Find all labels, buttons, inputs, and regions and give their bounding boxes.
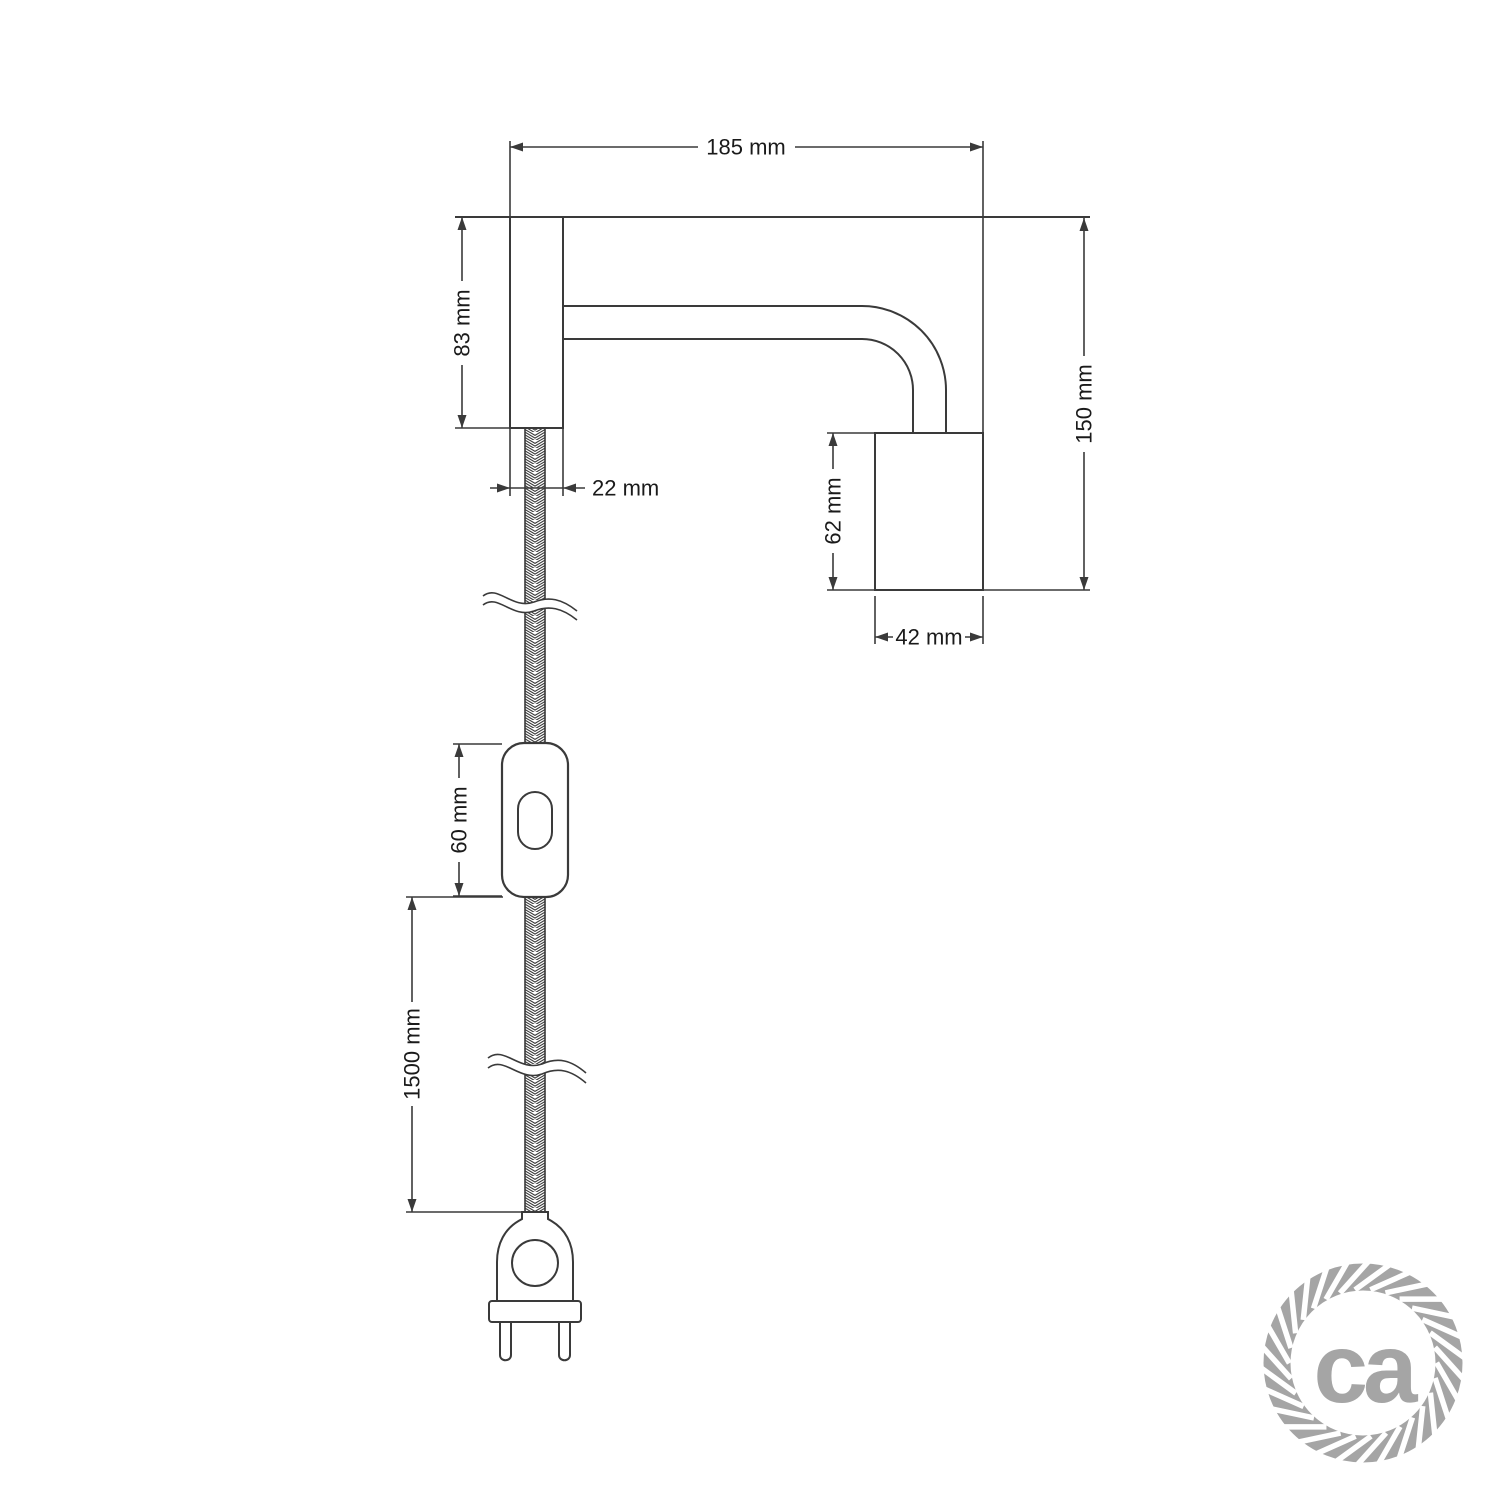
label-cable-length: 1500 mm [400,1008,425,1100]
technical-drawing-page: 185 mm 83 mm 22 mm [0,0,1500,1500]
cable-lower [525,890,545,1212]
dimension-plate-height: 83 mm [449,217,510,428]
inline-switch [502,743,568,897]
power-plug [489,1212,581,1360]
label-switch-length: 60 mm [447,786,472,853]
brand-logo: ca [1262,1262,1464,1464]
logo-monogram: ca [1313,1313,1419,1423]
plug-screw-circle [512,1240,558,1286]
label-socket-height: 62 mm [821,477,846,544]
label-total-width: 185 mm [706,135,785,160]
curved-arm [563,306,946,434]
cable-upper [525,428,545,750]
dimension-annotations: 185 mm 83 mm 22 mm [399,134,1097,1212]
plug-pin-left [500,1322,511,1360]
dimension-socket-width: 42 mm [875,596,983,650]
lamp-body [455,217,1090,1360]
label-plate-height: 83 mm [450,289,475,356]
lamp-dimension-diagram: 185 mm 83 mm 22 mm [0,0,1500,1500]
plug-base [489,1301,581,1322]
dimension-switch-length: 60 mm [446,744,502,896]
label-total-height: 150 mm [1072,364,1097,443]
dimension-plate-width: 22 mm [490,428,659,501]
lamp-socket [875,433,983,590]
label-plate-width: 22 mm [592,476,659,501]
dimension-total-height: 150 mm [1071,218,1097,590]
wall-plate [510,217,563,428]
label-socket-width: 42 mm [895,625,962,650]
switch-button [518,792,552,849]
plug-pin-right [559,1322,570,1360]
dimension-cable-length: 1500 mm [399,897,523,1212]
